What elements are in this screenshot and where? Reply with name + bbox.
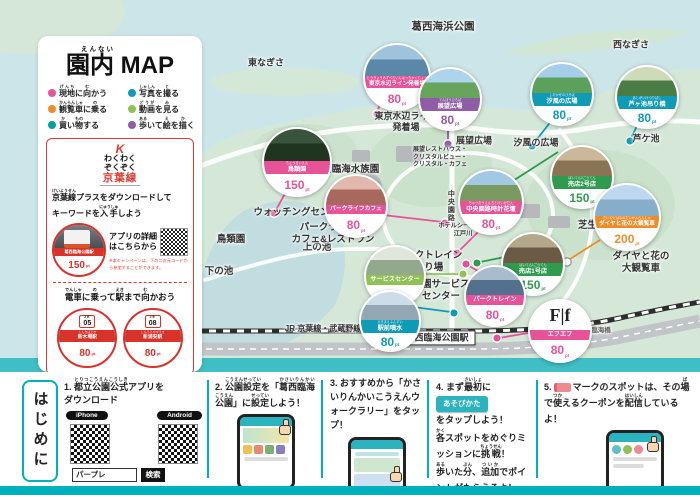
iphone-qr-code [70,424,110,464]
android-button[interactable]: Android [157,411,202,420]
spot-photo [532,64,592,93]
keiyo-logo-subline [100,185,140,186]
map-spot-5[interactable]: ちょうるいえん鳥類園150pt [262,127,332,197]
left-info-panel: えんない 園内 MAP 現地げんちに向むかう写真しゃしんを撮とる観覧車かんらんし… [38,36,202,372]
search-input[interactable]: パープレ [72,468,137,482]
legend-item-6: 歩あるいて絵えを描かく [128,117,196,132]
spot-points: 80pt [532,106,592,124]
coupon-mark-icon [554,383,571,392]
train-photo [54,225,104,248]
map-spot-3[interactable]: しおかぜのひろば汐風の広場80pt [530,62,594,126]
spot-points: 80pt [466,305,524,325]
step-divider [536,380,538,478]
step5-text: 5.マークのスポットは、その場ばで使つかえるクーポンを配信はいしんしているよ！ [544,377,694,428]
legend-item-4: 動画どうがを見みる [128,101,196,116]
getting-started-heading-box: はじめに [22,380,58,482]
map-spot-4[interactable]: あしがいけつりばし芦ヶ池吊り橋80pt [615,65,679,129]
spot-name: えきまえふんすい駅前噴水 [361,320,419,333]
legend-dot-icon [128,89,136,97]
spot-photo [552,147,612,176]
park-map-poster: 葛西海浜公園東なぎさ西なぎさ東京水辺ライン 発着場展望広場汐風の広場芦ケ池葛西臨… [0,0,700,495]
getting-started-panel: はじめに 1. 都立公園公式とりつこうえんこうしきアプリを ダウンロード iPh… [0,372,700,495]
step-divider [321,380,323,478]
spot-points: 80pt [530,340,590,361]
legend-dot-icon [48,121,56,129]
keiyo-headline: 京葉線けいようせんプラスをダウンロードして キーワードを入手にゅうしゅしよう [52,189,188,220]
spot-points: 150pt [264,174,330,195]
spot-points: 80pt [361,333,419,350]
map-spot-12[interactable]: パークトレイン80pt [464,265,526,327]
step4-line2: をタップしよう！ [436,412,533,428]
spot-photo [460,171,522,201]
spot-name: パークトレイン [466,295,524,304]
map-title: 園内 MAP [38,53,202,78]
map-spot-2[interactable]: てんぼうひろば展望広場80pt [418,67,482,131]
legend-item-5: 買かい物ものする [48,117,128,132]
keiyo-logo: K わくわく ぞくぞく 京葉線 [52,143,188,186]
campaign-note: ※本キャンペーンは、下の二次元コードから参加することができます。 [109,258,188,271]
spot-points: 200pt [595,228,659,249]
spot-name: ちゅうおうえんろとけいかだん中央園路時計花壇 [460,201,522,214]
step1-line1: 1. 都立公園公式とりつこうえんこうしきアプリを [64,377,204,395]
spot-photo [617,67,677,96]
step-4: 4. まず最初さいしょに あそびかた をタップしよう！ 各かくスポットをめぐりミ… [436,377,533,495]
iphone-button[interactable]: iPhone [66,411,108,420]
spot-name: あしがいけつりばし芦ヶ池吊り橋 [617,96,677,109]
spot-name: てんぼうひろば展望広場 [420,98,480,111]
spot-photo [326,176,386,205]
step4-line3: 各かくスポットをめぐりミッションに挑戦ちょうせん！ [436,428,533,462]
legend-dot-icon [48,105,56,113]
spot-photo [365,45,429,76]
legend-item-2: 写真しゃしんを撮とる [128,85,196,100]
station-badge-JE08: JE08しんうらやすえき新浦安駅80pt [123,308,183,368]
phone-mockup-step2 [237,414,295,490]
spot-photo [503,234,563,263]
spot-photo [366,247,424,275]
map-spot-10[interactable]: だいやとはなのだいかんらんしゃダイヤと花の大観覧車200pt [593,183,661,251]
app-detail-text: アプリの詳細 はこちらから [109,232,157,254]
spot-name: ばいてん2ごうてん売店2号店 [552,176,612,189]
spot-points: 80pt [617,109,677,127]
dashed-divider [53,282,187,283]
legend-dot-icon [128,121,136,129]
step3-text: 3. おすすめから「かさいりんかいこうえんウォークラリー」をタップ！ [330,377,424,433]
step1-line2: ダウンロード [64,395,204,407]
spot-name: しおかぜのひろば汐風の広場 [532,93,592,106]
map-title-furigana: えんない [16,43,180,53]
step-divider [427,380,429,478]
station-badge-points: 150pt [54,256,104,275]
keiyo-line-box: K わくわく ぞくぞく 京葉線 京葉線けいようせんプラスをダウンロードして キー… [46,138,194,375]
legend-item-3: 観覧車かんらんしゃに乗のる [48,101,128,116]
search-button[interactable]: 検索 [141,468,165,482]
step-divider [207,380,209,478]
spot-photo [595,185,659,216]
map-spot-6[interactable]: パークライフカフェ80pt [324,174,388,238]
spot-name: だいやとはなのだいかんらんしゃダイヤと花の大観覧車 [595,216,659,228]
station-badge-name: 葛西臨海公園駅 [54,248,104,256]
step2-text: 2. 公園設定こうえんせっていを「葛西臨海かさいりんかい公園こうえん」に設定せっ… [215,377,317,411]
map-spot-14[interactable]: F|fエフエフ80pt [528,299,592,363]
pointer-hand-icon [647,436,658,452]
spot-photo [264,129,330,161]
map-spot-7[interactable]: ちゅうおうえんろとけいかだん中央園路時計花壇80pt [458,169,524,235]
bottom-accent-bar [0,486,700,495]
train-heading: 電車でんしゃに乗のって駅えきまで向むかおう [52,287,188,305]
spot-name: パークライフカフェ [326,205,386,214]
spot-points: 80pt [326,214,386,236]
station-badge-JE05: JE05しんきばえき新木場駅80pt [57,308,117,368]
keiyo-app-row: 葛西臨海公園駅 150pt アプリの詳細 はこちらから ※本キャンペーンは、下の… [52,223,188,277]
asobikata-button[interactable]: あそびかた [436,396,488,412]
legend-dot-icon [128,105,136,113]
legend-dot-icon [48,89,56,97]
android-qr-code [158,424,198,464]
spot-photo: F|f [530,301,590,330]
step-1: 1. 都立公園公式とりつこうえんこうしきアプリを ダウンロード iPhone A… [64,377,204,482]
step4-line1: 4. まず最初さいしょに あそびかた [436,377,533,412]
map-spot-13[interactable]: えきまえふんすい駅前噴水80pt [359,290,421,352]
spot-points: 80pt [420,111,480,129]
station-badges-row: JE05しんきばえき新木場駅80ptJE08しんうらやすえき新浦安駅80pt [52,308,188,368]
spot-points: 80pt [460,214,522,233]
legend-item-1: 現地げんちに向むかう [48,85,128,100]
spot-photo [420,69,480,98]
legend: 現地げんちに向むかう写真しゃしんを撮とる観覧車かんらんしゃに乗のる動画どうがを見… [48,85,196,132]
keiyo-qr-code [160,228,188,256]
getting-started-heading: はじめに [30,391,51,471]
spot-name: サービスセンター [366,275,424,284]
step-2: 2. 公園設定こうえんせっていを「葛西臨海かさいりんかい公園こうえん」に設定せっ… [215,377,317,490]
step-3: 3. おすすめから「かさいりんかいこうえんウォークラリー」をタップ！ [330,377,424,495]
kasairinkai-station-badge: 葛西臨海公園駅 150pt [52,223,106,277]
spot-name: ちょうるいえん鳥類園 [264,161,330,174]
pointer-hand-icon [279,419,290,435]
step-5: 5.マークのスポットは、その場ばで使つかえるクーポンを配信はいしんしているよ！ [544,377,694,495]
spot-name: エフエフ [530,330,590,339]
keiyo-logo-line3: 京葉線 [52,173,188,185]
pointer-hand-icon [390,466,401,482]
